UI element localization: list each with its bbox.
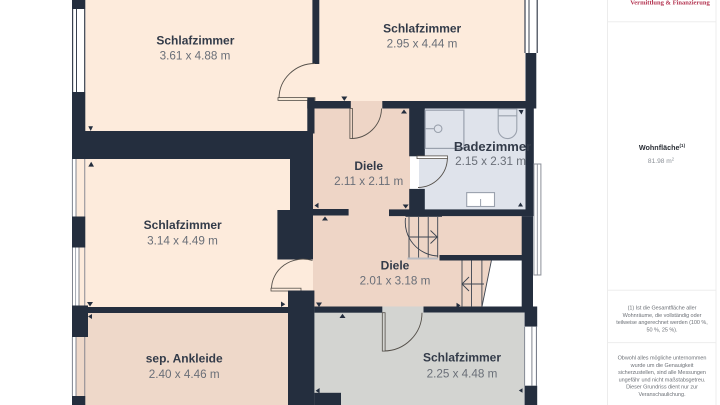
svg-text:Wohnräume, die vollständig ode: Wohnräume, die vollständig oder bbox=[623, 313, 702, 319]
svg-text:sicherzustellen, sind alle Mes: sicherzustellen, sind alle Messungen bbox=[618, 370, 706, 376]
svg-text:2.40 x 4.46 m: 2.40 x 4.46 m bbox=[149, 368, 220, 381]
svg-text:2.95 x 4.44 m: 2.95 x 4.44 m bbox=[387, 38, 458, 51]
svg-text:2.25 x 4.48 m: 2.25 x 4.48 m bbox=[427, 367, 498, 380]
svg-text:Diele: Diele bbox=[354, 159, 383, 173]
svg-text:Schlafzimmer: Schlafzimmer bbox=[383, 22, 461, 36]
svg-text:teilweise angerechnet werden (: teilweise angerechnet werden (100 %, bbox=[616, 320, 708, 326]
svg-text:sep. Ankleide: sep. Ankleide bbox=[146, 352, 223, 366]
svg-text:Schlafzimmer: Schlafzimmer bbox=[156, 34, 234, 48]
svg-text:2.11 x 2.11 m: 2.11 x 2.11 m bbox=[334, 175, 403, 188]
svg-text:Veranschaulichung.: Veranschaulichung. bbox=[638, 392, 686, 398]
svg-text:Diele: Diele bbox=[381, 259, 410, 273]
svg-text:3.61 x 4.88 m: 3.61 x 4.88 m bbox=[160, 50, 231, 63]
svg-text:3.14 x 4.49 m: 3.14 x 4.49 m bbox=[147, 234, 218, 247]
svg-text:2.15 x 2.31 m: 2.15 x 2.31 m bbox=[455, 155, 526, 168]
svg-text:Wohnfläche(1): Wohnfläche(1) bbox=[639, 143, 686, 152]
svg-text:Badezimmer: Badezimmer bbox=[454, 139, 531, 154]
svg-text:(1) Ist die Gesamtfläche aller: (1) Ist die Gesamtfläche aller bbox=[628, 306, 697, 312]
svg-text:81.98 m2: 81.98 m2 bbox=[648, 157, 675, 165]
svg-text:ungefähr und nicht maßstabsget: ungefähr und nicht maßstabsgetreu. bbox=[619, 377, 706, 383]
svg-text:wurde um die Genauigkeit: wurde um die Genauigkeit bbox=[630, 363, 694, 369]
svg-text:Schlafzimmer: Schlafzimmer bbox=[423, 350, 501, 364]
svg-text:Dieser Grundriss dient nur zur: Dieser Grundriss dient nur zur bbox=[626, 385, 698, 391]
svg-text:Obwohl alles mögliche unternom: Obwohl alles mögliche unternommen bbox=[618, 356, 707, 362]
svg-text:50 %, 25 %).: 50 %, 25 %). bbox=[647, 327, 678, 333]
svg-text:2.01 x 3.18 m: 2.01 x 3.18 m bbox=[360, 275, 431, 288]
svg-text:Schlafzimmer: Schlafzimmer bbox=[144, 218, 222, 232]
svg-text:Vermittlung & Finanzierung: Vermittlung & Finanzierung bbox=[630, 0, 710, 7]
